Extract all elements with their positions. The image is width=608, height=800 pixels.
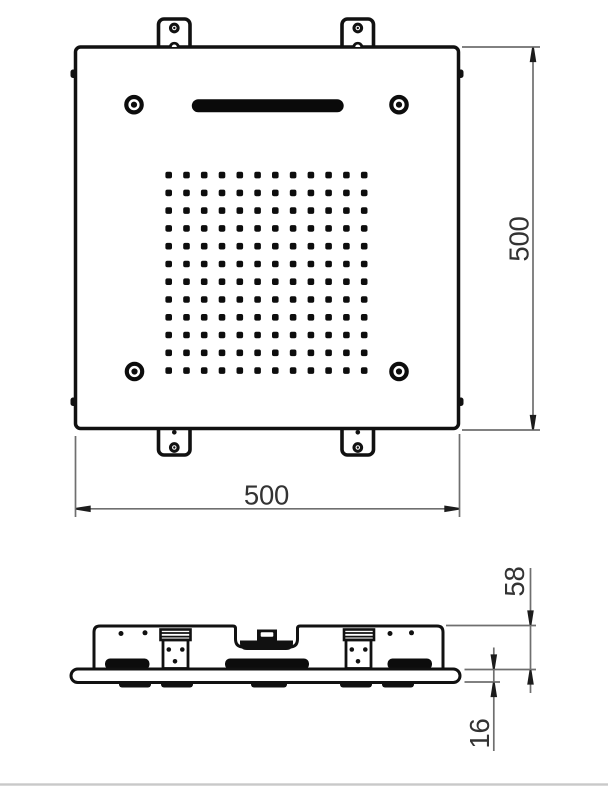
svg-text:16: 16 [464,718,495,748]
svg-text:58: 58 [499,566,530,596]
svg-text:500: 500 [244,480,289,511]
svg-text:500: 500 [504,216,535,261]
